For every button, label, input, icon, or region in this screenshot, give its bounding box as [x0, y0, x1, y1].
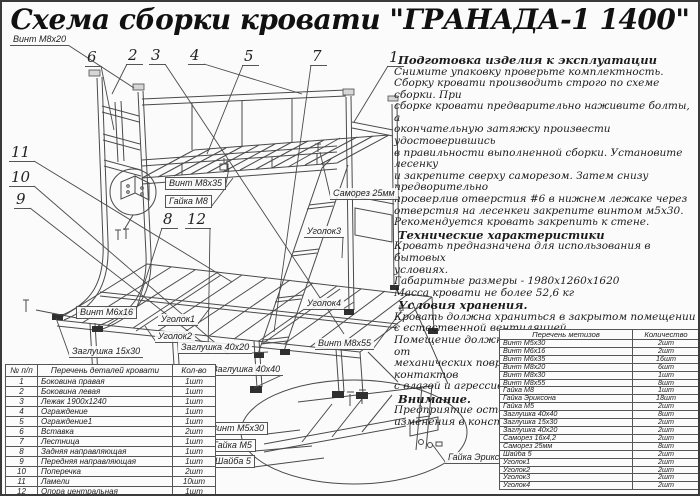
part-label: Уголок4: [304, 298, 344, 310]
table-cell: 1шт: [173, 487, 216, 496]
table-row: Винт М6х3516шт: [500, 355, 700, 363]
table-row: Гайка М81шт: [500, 387, 700, 395]
table-cell: 2шт: [173, 467, 216, 477]
column-header: Кол-во: [173, 365, 216, 377]
table-cell: 2шт: [633, 347, 700, 355]
table-row: Заглушка 40х202шт: [500, 426, 700, 434]
table-row: Саморез 16х4,22шт: [500, 434, 700, 442]
table-cell: Ламели: [38, 477, 173, 487]
instructions-line: Сборку кровати производить строго по схе…: [394, 78, 696, 101]
table-cell: Поперечка: [38, 467, 173, 477]
instructions-heading: Условия хранения.: [398, 299, 696, 312]
table-cell: Лестница: [38, 437, 173, 447]
part-label: Уголок3: [304, 226, 344, 238]
table-header-row: № п/пПеречень деталей кроватиКол-во: [6, 365, 216, 377]
column-header: № п/п: [6, 365, 38, 377]
callout-number: 7: [310, 49, 327, 66]
table-cell: 8шт: [633, 379, 700, 387]
table-cell: 18шт: [633, 395, 700, 403]
table-cell: Винт М8х55: [500, 379, 633, 387]
table-cell: Уголок3: [500, 474, 633, 482]
table-cell: 2шт: [633, 450, 700, 458]
table-cell: 5: [6, 417, 38, 427]
table-cell: 10шт: [173, 477, 216, 487]
table-cell: Вставка: [38, 427, 173, 437]
callout-number: 12: [185, 212, 211, 229]
instructions-line: окончательную затяжку произвести удостов…: [394, 124, 696, 147]
table-row: Заглушка 40х408шт: [500, 411, 700, 419]
table-cell: Опора центральная: [38, 487, 173, 496]
table-row: 12Опора центральная1шт: [6, 487, 216, 496]
table-cell: 1: [6, 377, 38, 387]
table-row: Винт М5х302шт: [500, 340, 700, 348]
table-row: Винт М8х206шт: [500, 363, 700, 371]
instructions-heading: Подготовка изделия к эксплуатации: [398, 54, 696, 67]
table-cell: 1шт: [173, 397, 216, 407]
column-header: Перечень деталей кровати: [38, 365, 173, 377]
table-cell: 1шт: [633, 371, 700, 379]
table-row: Винт М6х162шт: [500, 347, 700, 355]
parts-table: № п/пПеречень деталей кроватиКол-во1Боко…: [5, 364, 216, 496]
callout-number: 10: [9, 170, 35, 187]
table-cell: Боковина левая: [38, 387, 173, 397]
table-cell: 6: [6, 427, 38, 437]
instructions-line: просверлив отверстия #6 в нижнем лежаке …: [394, 194, 696, 206]
table-cell: 2шт: [633, 340, 700, 348]
table-cell: Винт М6х35: [500, 355, 633, 363]
table-cell: Заглушка 40х40: [500, 411, 633, 419]
table-cell: 2шт: [633, 426, 700, 434]
table-row: 7Лестница1шт: [6, 437, 216, 447]
part-label: Гайка М5: [209, 439, 256, 452]
table-cell: 2шт: [633, 458, 700, 466]
table-cell: Саморез 16х4,2: [500, 434, 633, 442]
table-cell: Боковина правая: [38, 377, 173, 387]
table-cell: Винт М8х20: [500, 363, 633, 371]
table-cell: 11: [6, 477, 38, 487]
table-cell: Ограждение1: [38, 417, 173, 427]
table-cell: 2шт: [633, 403, 700, 411]
callout-number: 3: [149, 48, 166, 65]
callout-number: 6: [85, 50, 102, 67]
table-cell: 2шт: [633, 434, 700, 442]
table-cell: Заглушка 15х30: [500, 419, 633, 427]
page-title: Схема сборки кровати "ГРАНАДА-1 1400": [2, 3, 698, 36]
table-row: 3Лежак 1900х12401шт: [6, 397, 216, 407]
table-cell: 1шт: [173, 377, 216, 387]
table-cell: 2шт: [633, 482, 700, 490]
table-cell: 2шт: [633, 419, 700, 427]
callout-number: 11: [9, 145, 35, 162]
table-cell: Шайба 5: [500, 450, 633, 458]
table-row: Гайка Эриксона18шт: [500, 395, 700, 403]
part-label: Гайка М8: [165, 195, 212, 208]
table-cell: 1шт: [173, 447, 216, 457]
part-label: Уголок2: [155, 331, 195, 343]
table-cell: Гайка М5: [500, 403, 633, 411]
table-row: Уголок12шт: [500, 458, 700, 466]
table-cell: Заглушка 40х20: [500, 426, 633, 434]
table-row: Гайка М52шт: [500, 403, 700, 411]
assembly-sheet: Схема сборки кровати "ГРАНАДА-1 1400": [0, 0, 700, 496]
table-row: 8Задняя направляющая1шт: [6, 447, 216, 457]
table-cell: 2шт: [633, 474, 700, 482]
table-cell: 1шт: [173, 407, 216, 417]
column-header: Количество: [633, 330, 700, 340]
table-cell: 1шт: [173, 437, 216, 447]
table-cell: 12: [6, 487, 38, 496]
table-cell: 2шт: [633, 466, 700, 474]
part-label: Винт М8х35: [165, 177, 226, 190]
column-header: Перечень метизов: [500, 330, 633, 340]
table-cell: Гайка Эриксона: [500, 395, 633, 403]
table-cell: 1шт: [633, 387, 700, 395]
part-label: Заглушка 40х40: [209, 364, 283, 376]
table-row: 10Поперечка2шт: [6, 467, 216, 477]
callout-number: 2: [126, 48, 143, 65]
instructions-line: в правильности выполненной сборки. Устан…: [394, 148, 696, 171]
table-cell: Гайка М8: [500, 387, 633, 395]
part-label: Шайба 5: [211, 455, 255, 468]
table-cell: 8: [6, 447, 38, 457]
table-cell: 1шт: [173, 387, 216, 397]
table-cell: 4: [6, 407, 38, 417]
instructions-line: Габаритные размеры - 1980х1260х1620: [394, 276, 696, 288]
part-label: Уголок1: [158, 314, 198, 326]
table-row: Уголок32шт: [500, 474, 700, 482]
table-cell: Уголок1: [500, 458, 633, 466]
hardware-table: Перечень метизовКоличествоВинт М5х302штВ…: [499, 329, 700, 490]
table-row: Заглушка 15х302шт: [500, 419, 700, 427]
table-cell: 1шт: [173, 417, 216, 427]
table-cell: 9: [6, 457, 38, 467]
table-cell: Задняя направляющая: [38, 447, 173, 457]
table-row: 1Боковина правая1шт: [6, 377, 216, 387]
table-cell: Лежак 1900х1240: [38, 397, 173, 407]
table-cell: Винт М6х16: [500, 347, 633, 355]
table-row: Уголок22шт: [500, 466, 700, 474]
table-cell: 2шт: [173, 427, 216, 437]
table-cell: 6шт: [633, 363, 700, 371]
table-cell: 1шт: [173, 457, 216, 467]
instructions-line: Кровать предназначена для использования …: [394, 241, 696, 264]
table-cell: Винт М8х30: [500, 371, 633, 379]
table-cell: Уголок2: [500, 466, 633, 474]
part-label: Винт М5х30: [207, 422, 268, 435]
table-cell: 3: [6, 397, 38, 407]
table-row: 9Передняя направляющая1шт: [6, 457, 216, 467]
instructions-line: и закрепите сверху саморезом. Затем сниз…: [394, 171, 696, 194]
table-row: Винт М8х558шт: [500, 379, 700, 387]
callout-number: 8: [161, 212, 178, 229]
table-cell: Саморез 25мм: [500, 442, 633, 450]
table-cell: Передняя направляющая: [38, 457, 173, 467]
table-row: 4Ограждение1шт: [6, 407, 216, 417]
part-label: Винт М8х55: [315, 338, 374, 350]
table-row: 2Боковина левая1шт: [6, 387, 216, 397]
table-row: 11Ламели10шт: [6, 477, 216, 487]
table-row: 6Вставка2шт: [6, 427, 216, 437]
table-cell: 2: [6, 387, 38, 397]
table-row: Винт М8х301шт: [500, 371, 700, 379]
table-header-row: Перечень метизовКоличество: [500, 330, 700, 340]
callout-number: 5: [242, 49, 259, 66]
callout-number: 4: [188, 48, 205, 65]
table-row: 5Ограждение11шт: [6, 417, 216, 427]
table-row: Шайба 52шт: [500, 450, 700, 458]
table-cell: 10: [6, 467, 38, 477]
table-row: Уголок42шт: [500, 482, 700, 490]
table-cell: Ограждение: [38, 407, 173, 417]
table-cell: 8шт: [633, 411, 700, 419]
part-label: Саморез 25мм: [330, 188, 398, 200]
table-cell: Винт М5х30: [500, 340, 633, 348]
table-row: Саморез 25мм8шт: [500, 442, 700, 450]
callout-number: 9: [14, 192, 31, 209]
table-cell: 16шт: [633, 355, 700, 363]
part-label: Заглушка 15х30: [69, 346, 143, 358]
table-cell: 8шт: [633, 442, 700, 450]
table-cell: Уголок4: [500, 482, 633, 490]
part-label: Винт М6х16: [76, 306, 137, 319]
instructions-line: сборке кровати предварительно наживите б…: [394, 101, 696, 124]
table-cell: 7: [6, 437, 38, 447]
part-label: Заглушка 40х20: [178, 342, 252, 354]
